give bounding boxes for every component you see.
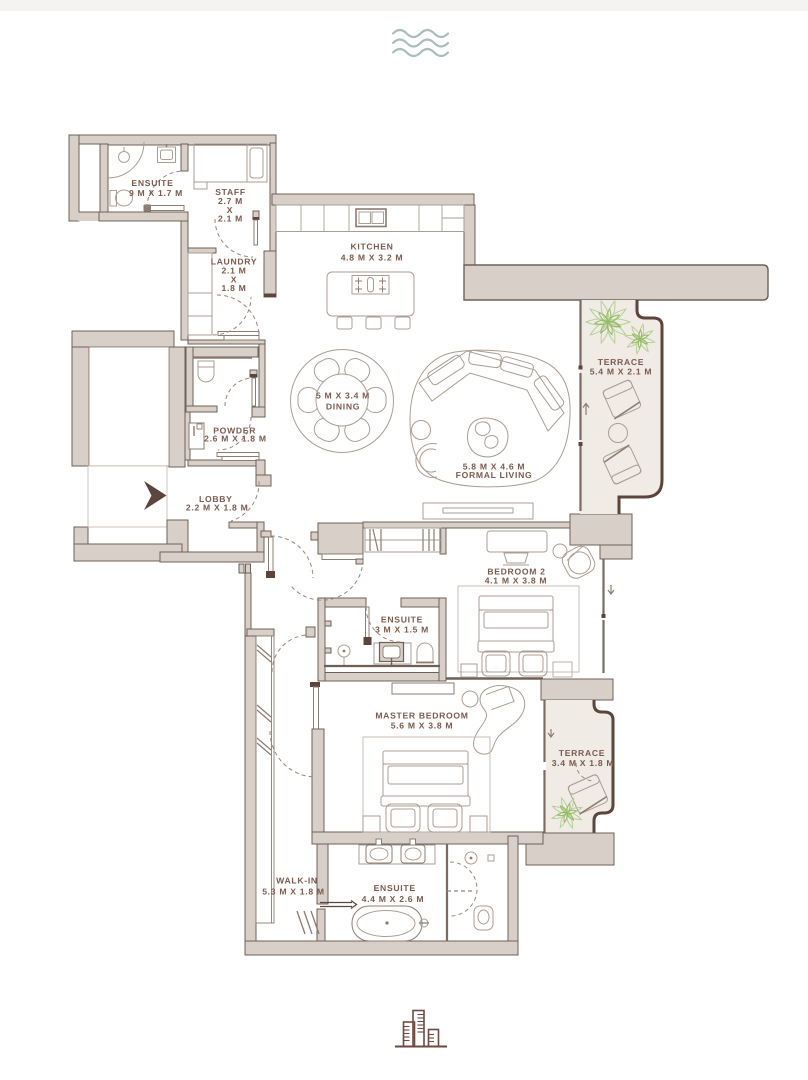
svg-text:5.4 M X 2.1 M: 5.4 M X 2.1 M	[590, 367, 653, 377]
svg-text:ENSUITE: ENSUITE	[374, 883, 416, 893]
svg-text:3.4 M X 1.8 M: 3.4 M X 1.8 M	[552, 758, 615, 768]
svg-text:5.3 M X 1.8 M: 5.3 M X 1.8 M	[262, 887, 325, 897]
svg-text:MASTER BEDROOM: MASTER BEDROOM	[375, 711, 468, 721]
svg-text:FORMAL LIVING: FORMAL LIVING	[456, 470, 533, 480]
svg-text:ENSUITE: ENSUITE	[381, 614, 423, 624]
svg-text:2.2 M X 1.8 M: 2.2 M X 1.8 M	[186, 503, 249, 513]
svg-text:4.8 M X 3.2 M: 4.8 M X 3.2 M	[341, 252, 404, 262]
svg-text:5.6 M X 3.8 M: 5.6 M X 3.8 M	[391, 721, 454, 731]
svg-text:4.4 M X 2.6 M: 4.4 M X 2.6 M	[362, 894, 425, 904]
svg-text:WALK-IN: WALK-IN	[276, 876, 318, 886]
svg-text:9 M X 1.7 M: 9 M X 1.7 M	[129, 188, 183, 198]
svg-text:5 M X 3.4 M: 5 M X 3.4 M	[316, 391, 370, 401]
svg-text:3 M X 1.5 M: 3 M X 1.5 M	[375, 625, 429, 635]
svg-text:ENSUITE: ENSUITE	[131, 178, 173, 188]
svg-text:KITCHEN: KITCHEN	[350, 242, 393, 252]
svg-text:TERRACE: TERRACE	[598, 357, 644, 367]
svg-text:4.1 M X 3.8 M: 4.1 M X 3.8 M	[485, 575, 548, 585]
svg-text:DINING: DINING	[326, 402, 360, 412]
svg-text:TERRACE: TERRACE	[559, 748, 605, 758]
svg-text:1.8 M: 1.8 M	[222, 283, 247, 293]
svg-text:2.1 M: 2.1 M	[218, 214, 243, 224]
svg-text:2.6 M X 1.8 M: 2.6 M X 1.8 M	[204, 434, 267, 444]
